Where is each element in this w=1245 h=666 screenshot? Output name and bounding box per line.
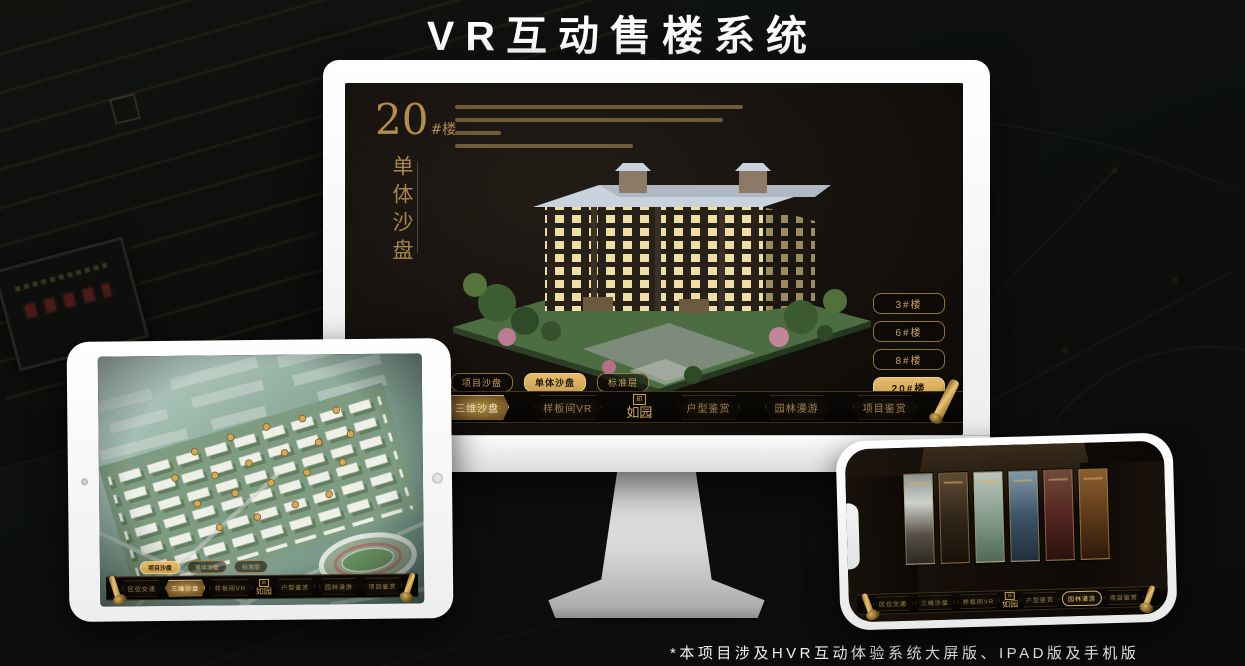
panorama-thumbnail-gallery	[845, 467, 1166, 567]
subtab-standard-floor[interactable]: 标准层	[597, 373, 649, 392]
building-number: 20	[375, 95, 428, 144]
gallery-panel-5[interactable]	[1043, 469, 1075, 561]
subtab-project-sandtable[interactable]: 项目沙盘	[451, 373, 513, 392]
tablet-screen: 项目沙盘 单体沙盘 标准层 区位交通 三维沙盘 样板间VR 印 如园 户型鉴赏 …	[98, 353, 425, 606]
floor-button-group: 3#楼 6#楼 8#楼 20#楼	[873, 293, 945, 398]
building-model-render	[433, 135, 883, 397]
gallery-panel-4[interactable]	[1008, 470, 1040, 562]
tablet-scroll-left-icon[interactable]	[108, 575, 122, 602]
poster-stage: VR互动售楼系统 20#楼 单体沙盘	[0, 0, 1245, 666]
tablet-subtab-single-sandtable[interactable]: 单体沙盘	[187, 560, 227, 573]
phone-mockup: 区位交通 三维沙盘 样板间VR 印 如园 户型鉴赏 园林漫游 项目鉴赏	[835, 432, 1177, 630]
tablet-subtabs: 项目沙盘 单体沙盘 标准层	[140, 560, 268, 574]
tablet-subtab-project-sandtable[interactable]: 项目沙盘	[140, 561, 180, 574]
heading-subtitle: 单体沙盘	[387, 155, 417, 267]
nav-item-unit-gallery[interactable]: 户型鉴赏	[676, 395, 740, 420]
monitor-stand	[542, 470, 772, 618]
phone-frame: 区位交通 三维沙盘 样板间VR 印 如园 户型鉴赏 园林漫游 项目鉴赏	[835, 432, 1177, 630]
tablet-nav-showroom-vr[interactable]: 样板间VR	[209, 579, 253, 596]
nav-item-project-gallery[interactable]: 项目鉴赏	[853, 395, 917, 420]
logo-text: 如园	[626, 407, 652, 420]
tablet-nav-project-gallery[interactable]: 项目鉴赏	[362, 577, 402, 594]
tablet-logo-text: 如园	[256, 587, 272, 595]
phone-nav-unit-gallery[interactable]: 户型鉴赏	[1020, 592, 1060, 608]
gallery-panel-1[interactable]	[903, 473, 935, 565]
tablet-nav-garden-roam[interactable]: 园林漫游	[319, 577, 359, 594]
tablet-camera-icon	[81, 478, 88, 485]
phone-app-logo: 印 如园	[1002, 592, 1018, 609]
tablet-nav-location-traffic[interactable]: 区位交通	[122, 580, 162, 597]
phone-notch	[846, 503, 860, 569]
tablet-scroll-right-icon[interactable]	[402, 572, 416, 599]
phone-nav-showroom-vr[interactable]: 样板间VR	[957, 593, 1001, 609]
gallery-panel-3[interactable]	[973, 471, 1005, 563]
nav-item-3d-sandtable[interactable]: 三维沙盘	[445, 395, 509, 420]
page-title: VR互动售楼系统	[0, 2, 1245, 62]
nav-item-showroom-vr[interactable]: 样板间VR	[533, 395, 602, 420]
tablet-frame: 项目沙盘 单体沙盘 标准层 区位交通 三维沙盘 样板间VR 印 如园 户型鉴赏 …	[67, 338, 454, 622]
phone-screen: 区位交通 三维沙盘 样板间VR 印 如园 户型鉴赏 园林漫游 项目鉴赏	[845, 441, 1169, 623]
heading-divider	[417, 161, 418, 253]
footnote-text: *本项目涉及HVR互动体验系统大屏版、IPAD版及手机版	[670, 642, 1139, 663]
subtab-single-sandtable[interactable]: 单体沙盘	[524, 373, 586, 392]
tablet-home-button[interactable]	[432, 473, 443, 484]
gallery-panel-2[interactable]	[938, 472, 970, 564]
tablet-nav-bar: 区位交通 三维沙盘 样板间VR 印 如园 户型鉴赏 园林漫游 项目鉴赏	[106, 573, 418, 600]
floor-button-8[interactable]: 8#楼	[873, 349, 945, 370]
tablet-app-logo: 印 如园	[256, 578, 272, 595]
phone-nav-project-gallery[interactable]: 项目鉴赏	[1104, 589, 1144, 605]
nav-item-garden-roam[interactable]: 园林漫游	[765, 395, 829, 420]
tablet-subtab-standard-floor[interactable]: 标准层	[234, 560, 268, 573]
app-logo: 印 如园	[626, 394, 652, 420]
tablet-logo-seal-icon: 印	[259, 578, 269, 586]
phone-logo-text: 如园	[1002, 601, 1018, 609]
logo-seal-icon: 印	[633, 394, 646, 405]
tablet-nav-unit-gallery[interactable]: 户型鉴赏	[275, 578, 315, 595]
floor-button-6[interactable]: 6#楼	[873, 321, 945, 342]
phone-nav-garden-roam-active[interactable]: 园林漫游	[1062, 590, 1102, 606]
tablet-nav-3d-sandtable[interactable]: 三维沙盘	[165, 579, 205, 596]
floor-button-3[interactable]: 3#楼	[873, 293, 945, 314]
gallery-panel-6[interactable]	[1078, 468, 1110, 560]
sandtable-subtabs: 项目沙盘 单体沙盘 标准层	[451, 373, 649, 392]
phone-scroll-right-icon[interactable]	[1142, 584, 1155, 609]
phone-nav-location-traffic[interactable]: 区位交通	[873, 596, 913, 612]
phone-nav-3d-sandtable[interactable]: 三维沙盘	[915, 594, 955, 610]
tablet-mockup: 项目沙盘 单体沙盘 标准层 区位交通 三维沙盘 样板间VR 印 如园 户型鉴赏 …	[67, 338, 454, 622]
